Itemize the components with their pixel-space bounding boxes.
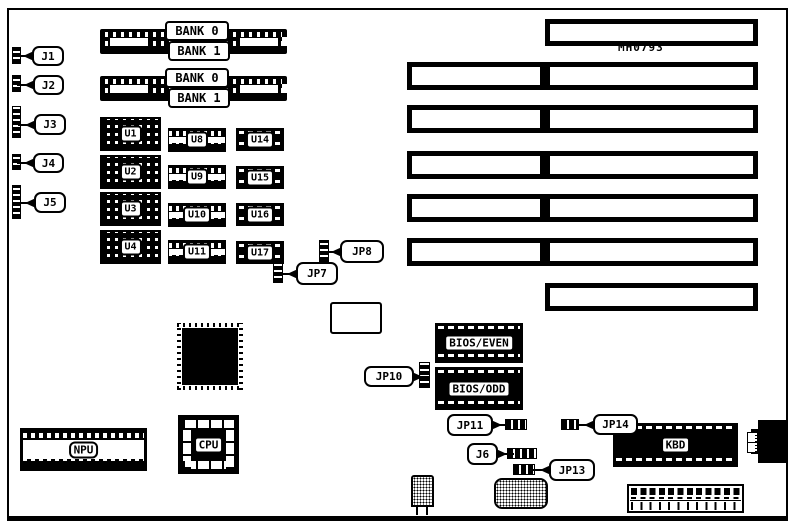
bank-text: BANK 1 [177, 91, 220, 105]
chip-label: U10 [183, 207, 211, 224]
callout-text: JP7 [307, 267, 327, 280]
callout-text: JP11 [457, 419, 484, 432]
callout-text: JP14 [602, 418, 629, 431]
chip-label: CPU [194, 436, 224, 453]
callout-text: J6 [476, 448, 489, 461]
chip-label: U4 [119, 239, 141, 256]
chip-u3: U3 [100, 192, 161, 226]
jumper-jp10-label: JP10 [364, 366, 414, 387]
isa-slot-short-5 [407, 194, 545, 222]
oscillator [330, 302, 382, 334]
chip-u2: U2 [100, 155, 161, 189]
isa-slot-long-2 [545, 62, 758, 90]
chip-label: U3 [119, 201, 141, 218]
chip-u1: U1 [100, 117, 161, 151]
isa-slot-long-4 [545, 151, 758, 179]
connector-j4-label: J4 [33, 153, 64, 173]
board-part-number: MH0793 [618, 41, 664, 54]
bank1-label-1: BANK 1 [168, 41, 230, 61]
isa-slot-short-2 [407, 62, 545, 90]
chip-u4: U4 [100, 230, 161, 264]
chip-label: U9 [186, 169, 208, 186]
jumper-jp8-label: JP8 [340, 240, 384, 263]
jumper-jp11-label: JP11 [447, 414, 493, 436]
callout-text: JP13 [559, 464, 586, 477]
chip-u14: U14 [236, 128, 284, 151]
keyboard-din-connector [758, 420, 786, 463]
isa-slot-long-7 [545, 283, 758, 311]
jumper-jp14-label: JP14 [593, 414, 638, 435]
isa-slot-long-3 [545, 105, 758, 133]
chip-label: KBD [661, 437, 691, 454]
isa-slot-short-4 [407, 151, 545, 179]
callout-text: JP10 [376, 370, 403, 383]
connector-j5-label: J5 [34, 192, 66, 213]
callout-text: J2 [42, 79, 55, 92]
din-port-icon [747, 442, 758, 453]
component-blob [494, 478, 548, 509]
connector-j6-label: J6 [467, 443, 498, 465]
chip-label: U2 [119, 164, 141, 181]
chip-label: BIOS/ODD [448, 380, 511, 397]
jumper-jp13-pins [513, 464, 535, 475]
callout-text: J5 [43, 196, 56, 209]
motherboard-diagram: J1 J2 J3 J4 J5 BANK 0 BANK 1 BANK 0 BANK… [0, 0, 791, 527]
qfp-chip [177, 323, 243, 390]
chip-bios-odd: BIOS/ODD [435, 367, 523, 410]
chip-label: U15 [246, 169, 274, 186]
jumper-jp13-label: JP13 [549, 459, 595, 481]
capacitor [411, 475, 434, 507]
chip-label: U11 [183, 244, 211, 261]
connector-j1-label: J1 [32, 46, 64, 66]
chip-u8: U8 [168, 128, 226, 152]
connector-j2-label: J2 [33, 75, 64, 95]
callout-text: J3 [43, 118, 56, 131]
cpu-socket: CPU [178, 415, 239, 474]
chip-u16: U16 [236, 203, 284, 226]
power-connector [627, 484, 744, 513]
chip-label: BIOS/EVEN [444, 335, 514, 352]
chip-label: U8 [186, 132, 208, 149]
bank0-label-1: BANK 0 [165, 21, 229, 41]
connector-j3-label: J3 [34, 114, 66, 135]
chip-label: U16 [246, 206, 274, 223]
isa-slot-long-5 [545, 194, 758, 222]
bank-text: BANK 1 [177, 44, 220, 58]
bank-text: BANK 0 [175, 24, 218, 38]
bank1-label-2: BANK 1 [168, 88, 230, 108]
bank0-label-2: BANK 0 [165, 68, 229, 88]
bank-text: BANK 0 [175, 71, 218, 85]
chip-label: U14 [246, 131, 274, 148]
chip-u9: U9 [168, 165, 226, 189]
chip-bios-even: BIOS/EVEN [435, 323, 523, 363]
chip-label: U17 [246, 244, 274, 261]
chip-u10: U10 [168, 203, 226, 227]
callout-text: J1 [41, 50, 54, 63]
chip-label: U1 [119, 126, 141, 143]
callout-text: JP8 [352, 245, 372, 258]
chip-u15: U15 [236, 166, 284, 189]
isa-slot-short-6 [407, 238, 545, 266]
chip-u11: U11 [168, 240, 226, 264]
chip-label: NPU [69, 441, 99, 458]
jumper-jp7-label: JP7 [296, 262, 338, 285]
callout-text: J4 [42, 157, 55, 170]
npu-socket: NPU [20, 428, 147, 471]
chip-u17: U17 [236, 241, 284, 264]
isa-slot-short-3 [407, 105, 545, 133]
isa-slot-long-6 [545, 238, 758, 266]
